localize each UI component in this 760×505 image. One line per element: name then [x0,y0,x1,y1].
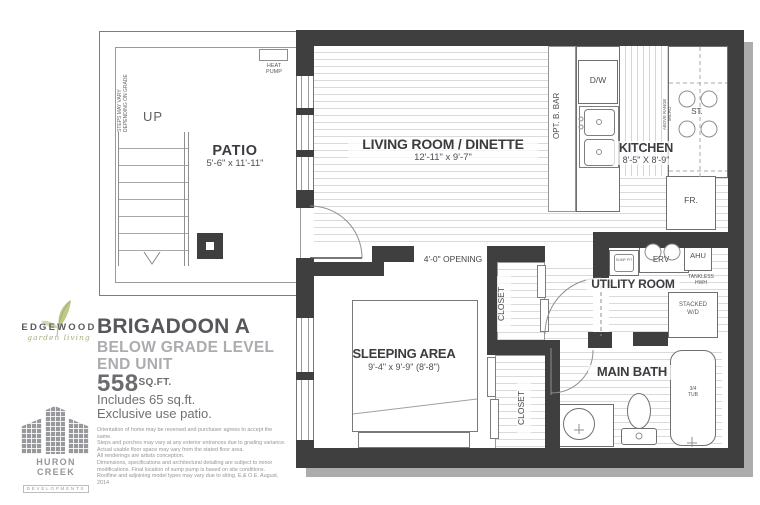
wall-bath-north-b [633,332,668,346]
model-subtitle-1: BELOW GRADE LEVEL [97,339,274,356]
closet-upper-door-1 [537,265,546,298]
living-room-dim: 12'-11" x 9'-7" [348,153,538,164]
edgewood-tagline: garden living [14,333,104,342]
edgewood-logo: EDGEWOOD garden living [14,300,104,342]
disclaimer-text: Orientation of home may be reversed and … [97,427,287,486]
floorplan-page: STEPS MAY VARY DEPENDING ON GRADE UP HEA… [0,0,760,505]
vanity-sink [563,408,595,440]
wall-right [728,30,744,468]
wall-bottom [296,448,744,468]
living-room-label: LIVING ROOM / DINETTE 12'-11" x 9'-7" [348,137,538,163]
patio-post-center [206,242,214,250]
closet-upper-door-2 [540,299,549,332]
kitchen-dim: 8'-5" X 8'-9" [608,155,684,165]
wall-top [296,30,744,46]
fridge-label: FR. [666,196,716,206]
closet-lower-door-1 [487,357,496,397]
disclaimer-line: Orientation of home may be reversed and … [97,427,287,440]
developer-sub: DEVELOPMENTS [23,485,90,493]
sump-pit-inner [614,254,634,272]
developer-sub-wrap: DEVELOPMENTS [18,477,94,495]
building-left [21,418,42,454]
window-mullion [296,372,314,380]
wall-left-a [296,30,314,76]
wall-shadow-bottom [306,468,753,477]
disclaimer-line: Steps and porches may vary at any exteri… [97,440,287,447]
patio-dim: 5'-6" x 11'-11" [185,159,285,170]
stairs [118,132,189,266]
wall-left-c [296,258,314,318]
wall-bath-west [545,355,560,448]
steps-note: STEPS MAY VARY DEPENDING ON GRADE [117,56,131,132]
closet-upper-label: CLOSET [497,276,511,332]
living-room-name: LIVING ROOM / DINETTE [348,137,538,153]
bed-footboard [358,432,470,448]
wall-closet-divider [487,340,560,355]
patio-label: PATIO 5'-6" x 11'-11" [185,143,285,170]
wall-shadow-right [744,42,753,477]
wall-left-b [296,190,314,208]
disclaimer-line: All renderings are artists conception. [97,453,287,460]
huron-creek-logo: HURON CREEK DEVELOPMENTS [18,406,94,495]
disclaimer-line: Roofline and adjoining model types may v… [97,473,287,486]
sump-label: SUMP PIT [608,259,640,263]
edgewood-name: EDGEWOOD [14,322,104,333]
buildings-icon [21,406,91,454]
living-window [296,76,314,190]
window-mullion [296,150,314,157]
dishwasher-label: D/W [578,76,618,86]
sleeping-area-name: SLEEPING AREA [330,347,478,362]
patio-post [197,233,223,259]
wall-bath-north-a [588,332,612,348]
tankless-hwh-label: TANKLESS HWH [681,274,721,286]
closet-lower-label: CLOSET [517,380,531,436]
opt-bar-label: OPT. B. BAR [553,68,571,164]
model-name: BRIGADOON A [97,315,250,339]
living-window-glass [301,76,309,190]
utility-room-label: UTILITY ROOM [586,278,680,291]
toilet-tank [621,428,657,445]
main-bath-label: MAIN BATH [588,365,676,380]
disclaimer-line: modifications. Final location of sump pu… [97,467,287,474]
building-center [45,406,65,454]
toilet-bowl [627,393,651,429]
building-right [68,418,89,454]
window-mullion [296,108,314,115]
area-unit: SQ.FT. [139,377,172,388]
wall-left-d [296,440,314,468]
wall-utility-north [600,232,728,248]
patio-name: PATIO [185,143,285,159]
bathtub [670,350,716,446]
erv-label: ERV [641,256,681,265]
kitchen-label: KITCHEN 8'-5" X 8'-9" [608,141,684,165]
sink-basin-top [584,109,615,136]
includes-line-2: Exclusive use patio. [97,407,212,422]
up-label: UP [137,110,169,125]
ahu-label: AHU [684,252,712,260]
sleeping-area-dim: 9'-4" x 9'-9" (8'-8") [330,362,478,372]
kitchen-name: KITCHEN [608,141,684,155]
heat-pump-unit [259,49,288,61]
sump-pit [609,250,639,276]
tub-label: 3/4 TUB [676,386,710,398]
sleeping-area-label: SLEEPING AREA 9'-4" x 9'-9" (8'-8") [330,347,478,372]
hall-floor [545,262,593,340]
opening-label: 4'-0" OPENING [406,255,500,265]
wall-sleeping-north [314,262,384,276]
disclaimer-line: Actual usable floor space may vary from … [97,447,287,454]
stacked-wd-label: STACKED W/D [668,302,718,317]
closet-lower-door-2 [490,399,499,439]
stove-label: ST. [686,108,708,117]
disclaimer-line: Dimensions, specifications and architect… [97,460,287,467]
heat-pump-label: HEAT PUMP [252,63,296,75]
above-range-micro-label: ABOVE RANGE MICRO [662,86,674,142]
developer-name: HURON CREEK [18,457,94,477]
